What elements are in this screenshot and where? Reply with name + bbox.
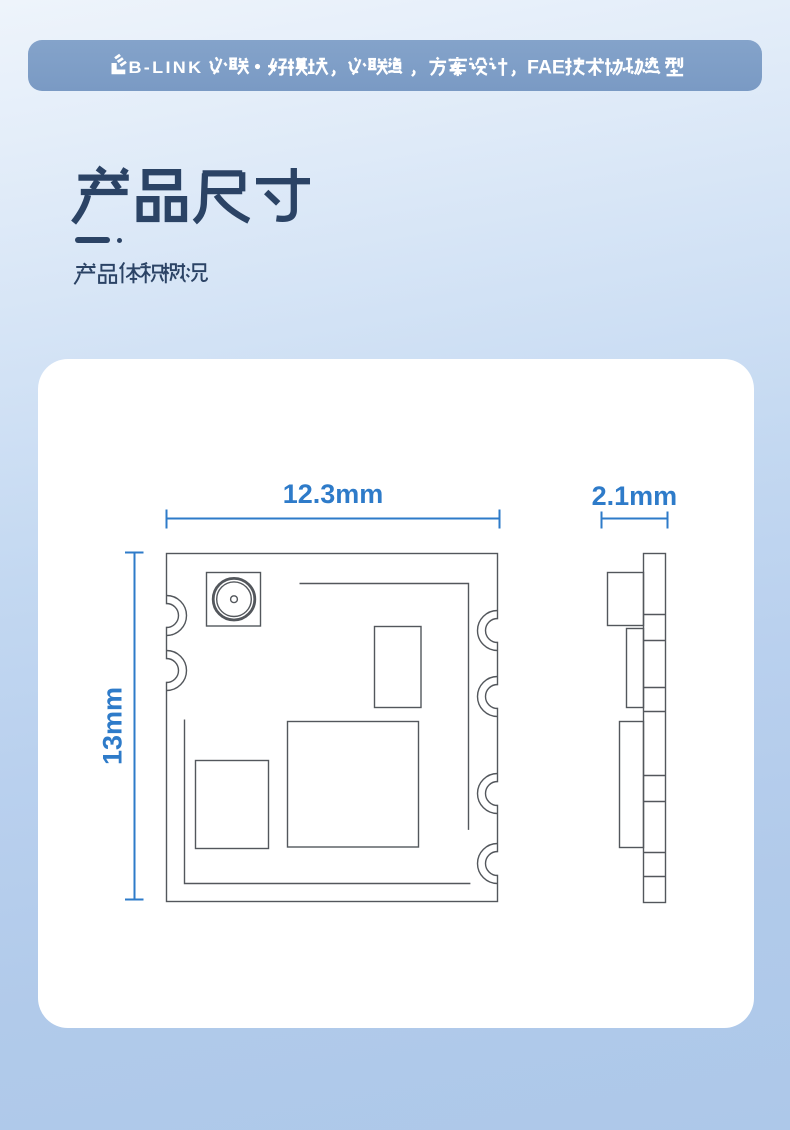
- svg-text:2.1mm: 2.1mm: [592, 481, 678, 511]
- svg-text:13mm: 13mm: [98, 687, 128, 765]
- svg-text:FAE: FAE: [527, 57, 565, 79]
- svg-text:12.3mm: 12.3mm: [283, 479, 384, 509]
- svg-text:B-LINK: B-LINK: [128, 57, 203, 76]
